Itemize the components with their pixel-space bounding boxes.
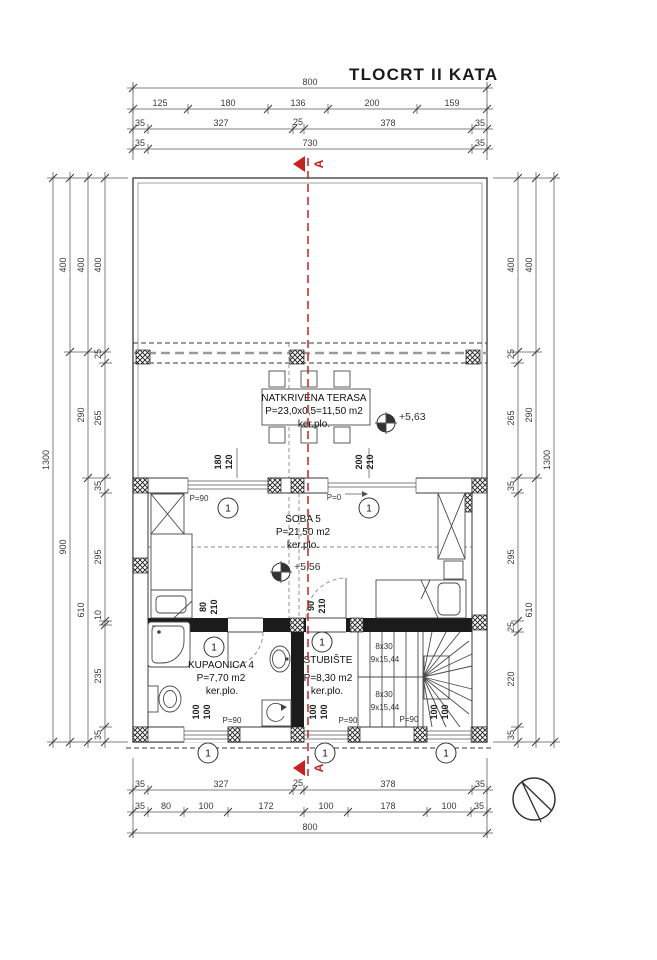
- room-area: P=23,0x0,5=11,50 m2: [265, 406, 363, 417]
- opening-width: 80: [198, 602, 208, 612]
- dim-label: 80: [161, 801, 171, 811]
- dim-label: 290: [76, 407, 86, 422]
- room-name: STUBIŠTE: [304, 653, 353, 666]
- dim-label: 35: [475, 138, 485, 148]
- section-label: A: [312, 763, 326, 772]
- opening-width: 100: [429, 704, 439, 719]
- dim-label: 178: [380, 801, 395, 811]
- dim-label: 35: [475, 118, 485, 128]
- dim-label: 610: [76, 602, 86, 617]
- position-marker: 1: [198, 743, 218, 763]
- parapet-label: P=90: [339, 716, 358, 725]
- svg-text:1: 1: [366, 504, 372, 515]
- dim-label: 327: [213, 779, 228, 789]
- dim-label: 100: [198, 801, 213, 811]
- toilet: [148, 686, 181, 712]
- dim-label: 730: [302, 138, 317, 148]
- dim-label: 235: [93, 668, 103, 683]
- window-stair: [427, 727, 471, 743]
- dim-label: 136: [290, 98, 305, 108]
- room-floor: ker.plo.: [298, 419, 330, 430]
- position-marker: 1: [312, 632, 332, 652]
- dim-label: 378: [380, 118, 395, 128]
- parapet-label: P=90: [190, 494, 209, 503]
- opening-height: 100: [440, 704, 450, 719]
- parapet-label: P=90: [223, 716, 242, 725]
- chair: [269, 427, 285, 443]
- room-area: P=8,30 m2: [304, 673, 353, 684]
- stair-run-label: 8x30: [375, 690, 393, 699]
- parapet-label: P=0: [327, 493, 342, 502]
- floor-plan-sheet: TLOCRT II KATA 800 125 180 136 200 159 3…: [0, 0, 657, 960]
- dim-label: 1300: [542, 450, 552, 470]
- svg-text:1: 1: [211, 643, 217, 654]
- opening-height: 210: [365, 454, 375, 469]
- elevation-marker-soba: +5,56: [270, 561, 321, 583]
- svg-text:1: 1: [205, 749, 211, 760]
- dim-label: 159: [444, 98, 459, 108]
- dim-label: 400: [506, 257, 516, 272]
- opening-width: 200: [354, 454, 364, 469]
- opening-width: 100: [308, 704, 318, 719]
- dim-label: 125: [152, 98, 167, 108]
- room-name: KUPAONICA 4: [188, 660, 254, 671]
- dim-label: 1300: [41, 450, 51, 470]
- opening-height: 210: [317, 598, 327, 613]
- dim-label: 900: [58, 539, 68, 554]
- position-marker: 1: [315, 743, 335, 763]
- bed-right: [376, 580, 466, 618]
- dim-label: 220: [506, 671, 516, 686]
- north-arrow-icon: [513, 778, 555, 822]
- dim-label: 35: [135, 779, 145, 789]
- dim-label: 400: [524, 257, 534, 272]
- svg-text:1: 1: [319, 638, 325, 649]
- floor-plan-drawing: TLOCRT II KATA 800 125 180 136 200 159 3…: [0, 0, 657, 960]
- position-marker: 1: [204, 637, 224, 657]
- opening-height: 100: [202, 704, 212, 719]
- page-title: TLOCRT II KATA: [349, 65, 498, 84]
- stair-run-label: 9x15,44: [371, 703, 400, 712]
- opening-height: 210: [209, 599, 219, 614]
- dim-label: 35: [506, 481, 516, 491]
- dim-label: 10: [93, 610, 103, 620]
- nightstand: [444, 561, 463, 579]
- svg-text:1: 1: [443, 749, 449, 760]
- boiler: [262, 700, 291, 726]
- room-floor: ker.plo.: [311, 686, 343, 697]
- opening-height: 100: [319, 704, 329, 719]
- dim-label: 35: [93, 481, 103, 491]
- window-kupaonica: [184, 727, 228, 743]
- dim-label: 378: [380, 779, 395, 789]
- dim-label: 35: [135, 138, 145, 148]
- dimension-chain-bottom: 35 327 25 378 35 35 80 100 172 100 178 1…: [127, 758, 493, 838]
- position-marker: 1: [359, 498, 379, 518]
- window-stubiste: [304, 727, 349, 743]
- room-name: SOBA 5: [285, 514, 321, 525]
- svg-text:1: 1: [225, 504, 231, 515]
- chair: [301, 371, 317, 387]
- dim-label: 100: [441, 801, 456, 811]
- parapet-label: P=90: [400, 715, 419, 724]
- svg-text:1: 1: [322, 749, 328, 760]
- dim-label: 290: [524, 407, 534, 422]
- opening-width: 180: [213, 454, 223, 469]
- dim-label: 35: [506, 730, 516, 740]
- window-terrace: [188, 478, 268, 494]
- elevation-marker-terrace: +5,63: [375, 411, 426, 434]
- dim-label: 265: [93, 410, 103, 425]
- dim-label: 35: [475, 779, 485, 789]
- dim-label: 400: [76, 257, 86, 272]
- stair-landing: [424, 656, 449, 699]
- stair-run-label: 8x30: [375, 642, 393, 651]
- wardrobe-right: [438, 493, 465, 559]
- door-terrace: [328, 478, 416, 494]
- room-area: P=21,50 m2: [276, 527, 331, 538]
- section-cut-arrow-icon: A: [293, 156, 326, 172]
- dim-label: 200: [364, 98, 379, 108]
- dim-label: 100: [318, 801, 333, 811]
- dim-label: 180: [220, 98, 235, 108]
- chair: [334, 427, 350, 443]
- washbasin: [270, 646, 290, 672]
- room-floor: ker.plo.: [206, 686, 238, 697]
- room-floor: ker.plo.: [287, 540, 319, 551]
- dim-label: 25: [293, 117, 303, 127]
- shower: [148, 622, 190, 667]
- opening-height: 120: [224, 454, 234, 469]
- dim-label: 295: [93, 549, 103, 564]
- dim-label: 800: [302, 77, 317, 87]
- dim-label: 25: [506, 349, 516, 359]
- dim-label: 25: [293, 778, 303, 788]
- dimension-chain-right: 400 25 265 35 295 25 220 35 400 290 610 …: [493, 172, 560, 748]
- dim-label: 265: [506, 410, 516, 425]
- dim-label: 610: [524, 602, 534, 617]
- dim-label: 172: [258, 801, 273, 811]
- dim-label: 35: [135, 118, 145, 128]
- position-marker: 1: [218, 498, 238, 518]
- bed-left: [151, 534, 192, 618]
- dim-label: 35: [93, 730, 103, 740]
- dim-label: 25: [93, 349, 103, 359]
- section-label: A: [312, 159, 326, 168]
- dim-label: 800: [302, 822, 317, 832]
- room-area: P=7,70 m2: [197, 673, 246, 684]
- dim-label: 25: [506, 622, 516, 632]
- elevation-value: +5,63: [399, 411, 426, 423]
- dimension-chain-top: 800 125 180 136 200 159 35 327 25 378 35…: [127, 77, 493, 160]
- dim-label: 400: [93, 257, 103, 272]
- position-marker: 1: [436, 743, 456, 763]
- dim-label: 35: [135, 801, 145, 811]
- dim-label: 295: [506, 549, 516, 564]
- chair: [269, 371, 285, 387]
- opening-width: 100: [191, 704, 201, 719]
- dim-label: 400: [58, 257, 68, 272]
- wardrobe-left: [151, 494, 184, 534]
- chair: [334, 371, 350, 387]
- dim-label: 327: [213, 118, 228, 128]
- dimension-chain-left: 1300 400 900 400 290 610 400 25 265 35 2…: [41, 172, 128, 748]
- stair-run-label: 9x15,44: [371, 655, 400, 664]
- room-name: NATKRIVENA TERASA: [261, 393, 367, 404]
- dim-label: 35: [474, 801, 484, 811]
